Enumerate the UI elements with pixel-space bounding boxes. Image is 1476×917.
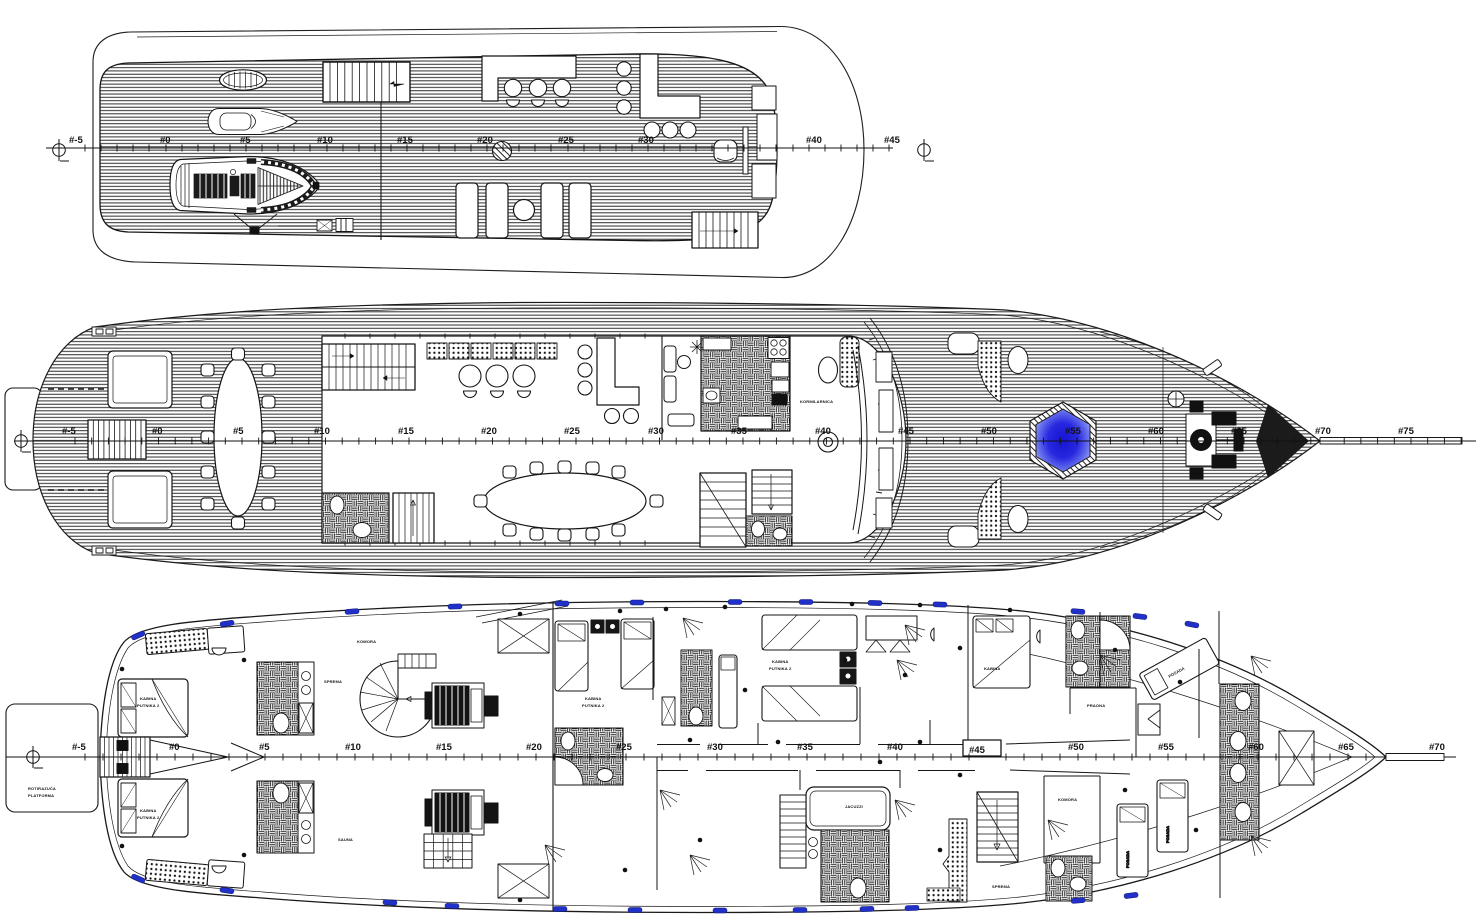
- svg-text:KABINA: KABINA: [772, 659, 788, 664]
- svg-text:KABINA: KABINA: [585, 696, 601, 701]
- svg-text:#30: #30: [707, 742, 723, 753]
- svg-text:#35: #35: [797, 742, 814, 753]
- svg-text:#-5: #-5: [62, 426, 76, 437]
- svg-text:PRAONA: PRAONA: [1087, 703, 1105, 708]
- svg-text:#15: #15: [436, 742, 453, 753]
- svg-text:#10: #10: [314, 426, 330, 437]
- svg-text:#40: #40: [815, 426, 831, 437]
- svg-text:KOMORA: KOMORA: [357, 639, 376, 644]
- svg-text:#30: #30: [638, 135, 654, 146]
- svg-text:#60: #60: [1148, 426, 1164, 437]
- svg-text:#-5: #-5: [72, 742, 86, 753]
- svg-text:#55: #55: [1065, 426, 1082, 437]
- svg-text:#45: #45: [969, 745, 986, 756]
- svg-text:#20: #20: [526, 742, 542, 753]
- svg-text:#45: #45: [884, 135, 901, 146]
- svg-text:#15: #15: [398, 426, 415, 437]
- svg-text:#20: #20: [481, 426, 497, 437]
- svg-text:#55: #55: [1158, 742, 1175, 753]
- svg-text:#20: #20: [477, 135, 493, 146]
- svg-text:#50: #50: [981, 426, 997, 437]
- svg-text:#40: #40: [887, 742, 903, 753]
- svg-text:#5: #5: [233, 426, 244, 437]
- svg-text:#70: #70: [1429, 742, 1445, 753]
- svg-text:#5: #5: [259, 742, 270, 753]
- svg-text:PUTNIKA 2: PUTNIKA 2: [769, 666, 792, 671]
- svg-text:JACUZZI: JACUZZI: [845, 804, 863, 809]
- svg-text:KABINA: KABINA: [984, 666, 1000, 671]
- svg-text:#10: #10: [345, 742, 361, 753]
- svg-text:#45: #45: [898, 426, 915, 437]
- svg-text:#0: #0: [169, 742, 180, 753]
- svg-text:#25: #25: [564, 426, 581, 437]
- svg-text:POSADA: POSADA: [1126, 851, 1130, 868]
- svg-text:SAUNA: SAUNA: [338, 837, 353, 842]
- svg-text:KABINA: KABINA: [140, 696, 156, 701]
- svg-text:#65: #65: [1338, 742, 1355, 753]
- svg-text:#0: #0: [160, 135, 171, 146]
- svg-text:SPREMA: SPREMA: [992, 884, 1010, 889]
- svg-text:#15: #15: [397, 135, 414, 146]
- svg-text:POSADA: POSADA: [1166, 826, 1170, 843]
- svg-text:SPREMA: SPREMA: [324, 679, 342, 684]
- svg-text:#0: #0: [152, 426, 163, 437]
- svg-text:KABINA: KABINA: [140, 808, 156, 813]
- svg-text:#50: #50: [1068, 742, 1084, 753]
- svg-text:PUTNIKA 2: PUTNIKA 2: [137, 703, 160, 708]
- svg-text:#30: #30: [648, 426, 664, 437]
- svg-text:PUTNIKA 2: PUTNIKA 2: [582, 703, 605, 708]
- svg-text:#40: #40: [806, 135, 822, 146]
- svg-text:#10: #10: [317, 135, 333, 146]
- svg-text:#75: #75: [1398, 426, 1415, 437]
- svg-text:PLATFORMA: PLATFORMA: [28, 793, 54, 798]
- svg-text:#60: #60: [1248, 742, 1264, 753]
- svg-text:#70: #70: [1315, 426, 1331, 437]
- svg-text:KOMORA: KOMORA: [1058, 797, 1077, 802]
- svg-text:#65: #65: [1231, 426, 1248, 437]
- svg-text:#5: #5: [240, 135, 251, 146]
- svg-text:#35: #35: [731, 426, 748, 437]
- svg-text:#25: #25: [616, 742, 633, 753]
- svg-text:ROTIRAZUĆA: ROTIRAZUĆA: [28, 786, 56, 791]
- svg-text:KORMILARNICA: KORMILARNICA: [800, 399, 833, 404]
- svg-text:#-5: #-5: [69, 135, 83, 146]
- svg-text:#25: #25: [558, 135, 575, 146]
- svg-text:PUTNIKA 2: PUTNIKA 2: [137, 815, 160, 820]
